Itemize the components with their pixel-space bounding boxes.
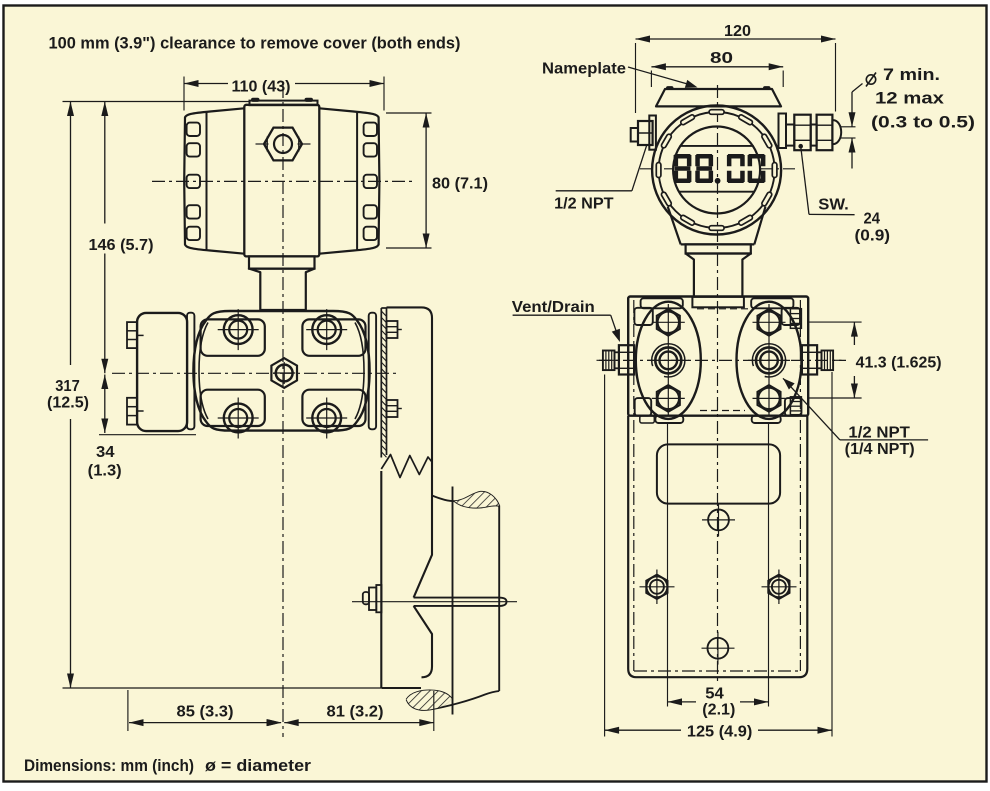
svg-text:317: 317 xyxy=(55,378,80,395)
svg-text:110 (43): 110 (43) xyxy=(232,78,291,95)
svg-text:54: 54 xyxy=(705,685,724,702)
svg-text:24: 24 xyxy=(864,210,881,227)
svg-text:1/2 NPT: 1/2 NPT xyxy=(848,424,910,441)
svg-text:Vent/Drain: Vent/Drain xyxy=(512,299,595,316)
svg-text:Nameplate: Nameplate xyxy=(542,60,626,77)
svg-text:34: 34 xyxy=(96,444,115,461)
svg-text:(1.3): (1.3) xyxy=(88,463,122,480)
svg-text:12 max: 12 max xyxy=(875,89,945,108)
svg-text:SW.: SW. xyxy=(818,196,849,213)
svg-text:125 (4.9): 125 (4.9) xyxy=(687,723,753,740)
svg-text:120: 120 xyxy=(724,23,751,40)
svg-text:(2.1): (2.1) xyxy=(702,702,735,719)
svg-text:146 (5.7): 146 (5.7) xyxy=(89,237,154,254)
svg-text:80 (7.1): 80 (7.1) xyxy=(432,175,488,192)
svg-text:(1/4 NPT): (1/4 NPT) xyxy=(845,441,915,458)
svg-text:(12.5): (12.5) xyxy=(47,394,89,411)
svg-text:1/2 NPT: 1/2 NPT xyxy=(554,195,614,212)
svg-text:85 (3.3): 85 (3.3) xyxy=(177,703,234,720)
svg-text:(0.9): (0.9) xyxy=(855,228,891,245)
svg-text:(0.3 to 0.5): (0.3 to 0.5) xyxy=(871,113,975,132)
svg-text:100 mm (3.9") clearance to rem: 100 mm (3.9") clearance to remove cover … xyxy=(49,33,461,52)
svg-text:Dimensions: mm (inch): Dimensions: mm (inch) xyxy=(24,756,194,775)
svg-text:41.3 (1.625): 41.3 (1.625) xyxy=(856,354,942,371)
svg-text:ø = diameter: ø = diameter xyxy=(205,756,311,775)
svg-text:81 (3.2): 81 (3.2) xyxy=(327,703,384,720)
svg-text:7 min.: 7 min. xyxy=(883,65,940,84)
svg-text:80: 80 xyxy=(710,50,733,67)
